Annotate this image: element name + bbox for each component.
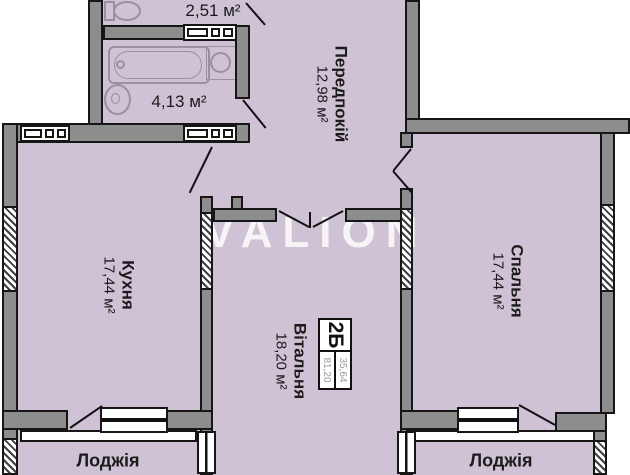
wall-loggia-left-top-a xyxy=(2,410,68,430)
vent-block-wc xyxy=(183,24,237,41)
bedroom-area: 17,44 м² xyxy=(490,206,507,356)
bedroom-label: Спальня 17,44 м² xyxy=(490,206,527,356)
kitchen-name: Кухня xyxy=(118,210,138,360)
wall-wc-left xyxy=(88,0,103,127)
toilet-icon xyxy=(113,1,141,21)
wall-loggia-right-top-a xyxy=(400,410,462,430)
wall-bedroom-top xyxy=(405,118,630,134)
bathtub-drain-icon xyxy=(116,60,125,69)
kitchen-area: 17,44 м² xyxy=(101,210,118,360)
living-room-label: Вітальня 18,20 м² xyxy=(273,296,310,426)
unit-badge: 2Б 35,64 81,20 xyxy=(318,318,352,390)
hallway-name: Передпокій xyxy=(331,19,351,169)
unit-code: 2Б xyxy=(320,320,350,350)
balcony-window-bedroom xyxy=(457,407,519,433)
wc-area-label: 2,51 м² xyxy=(185,1,240,21)
hallway-area: 12,98 м² xyxy=(314,19,331,169)
bathtub-inner-icon xyxy=(114,51,202,79)
living-window-right xyxy=(397,431,416,474)
window-loggia-right xyxy=(593,440,607,475)
living-room-area: 18,20 м² xyxy=(273,296,290,426)
wall-pilaster xyxy=(231,196,243,210)
wall-loggia-left-top-b xyxy=(165,410,213,430)
unit-areas: 35,64 81,20 xyxy=(320,350,350,388)
partition-hatch-right xyxy=(400,208,413,290)
bedroom-name: Спальня xyxy=(507,206,527,356)
wall-hallway-right xyxy=(405,0,420,132)
living-room-name: Вітальня xyxy=(290,296,310,426)
window-bedroom xyxy=(600,204,615,292)
outside-right xyxy=(613,118,630,414)
sink-icon xyxy=(210,52,231,73)
vent-block-bath xyxy=(183,125,237,142)
kitchen-label: Кухня 17,44 м² xyxy=(101,210,138,360)
outside-bottom-right xyxy=(605,414,630,475)
floor-plan: VALION 2,51 м² 4,13 м² Перед xyxy=(0,0,630,475)
living-window-left xyxy=(197,431,216,474)
outside-top-left xyxy=(0,0,88,123)
window-kitchen xyxy=(2,206,18,292)
washbasin-drain-icon xyxy=(111,93,120,104)
wall-living-top-right xyxy=(345,208,405,222)
loggia-right-label: Лоджія xyxy=(469,451,532,472)
loggia-left-label: Лоджія xyxy=(76,451,139,472)
wall-living-top-left xyxy=(213,208,277,222)
wall-bottom-right-elbow xyxy=(555,412,607,432)
unit-total-area: 81,20 xyxy=(320,352,336,388)
balcony-window-kitchen xyxy=(100,407,168,433)
hallway-label: Передпокій 12,98 м² xyxy=(314,19,351,169)
bathroom-area-label: 4,13 м² xyxy=(151,92,206,112)
window-loggia-left xyxy=(2,438,18,475)
wall-bedroom-door-stub xyxy=(400,132,413,148)
wall-bath-right xyxy=(235,25,250,99)
partition-hatch-left xyxy=(200,212,213,290)
vent-block-kitchen xyxy=(20,125,70,142)
outside-top-right xyxy=(418,0,630,118)
door-living-double-tick xyxy=(309,212,311,228)
unit-living-area: 35,64 xyxy=(336,352,350,388)
